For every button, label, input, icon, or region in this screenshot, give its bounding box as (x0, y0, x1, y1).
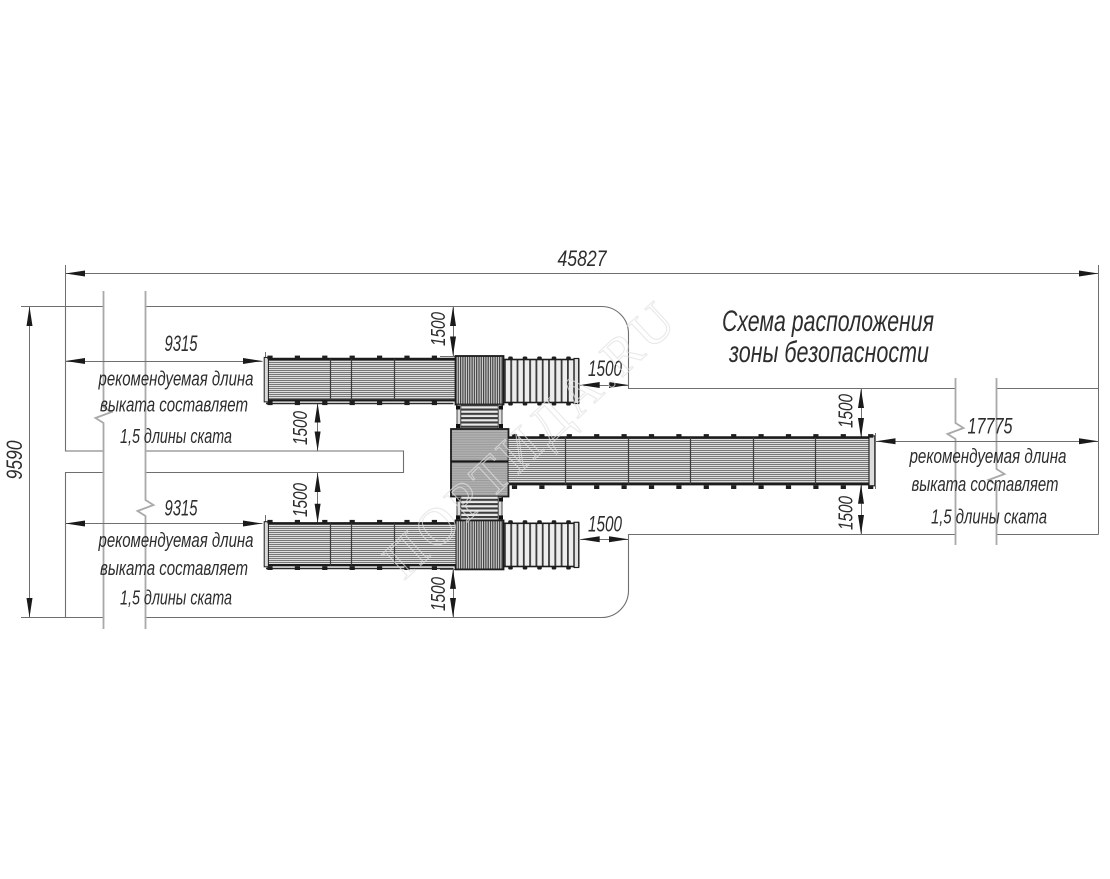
svg-text:1500: 1500 (836, 496, 858, 530)
svg-text:выката составляет: выката составляет (912, 474, 1059, 496)
svg-text:выката составляет: выката составляет (100, 395, 248, 417)
svg-text:1500: 1500 (836, 394, 858, 428)
svg-text:45827: 45827 (558, 246, 608, 271)
svg-text:рекомендуемая длина: рекомендуемая длина (909, 446, 1067, 468)
svg-text:зоны безопасности: зоны безопасности (728, 336, 929, 369)
svg-text:17775: 17775 (968, 414, 1014, 439)
svg-text:Схема расположения: Схема расположения (722, 305, 934, 338)
svg-text:9315: 9315 (165, 496, 199, 521)
svg-text:рекомендуемая длина: рекомендуемая длина (98, 530, 254, 552)
svg-text:1500: 1500 (290, 483, 312, 517)
svg-text:выката составляет: выката составляет (100, 558, 248, 580)
svg-text:1,5 длины ската: 1,5 длины ската (120, 426, 232, 448)
svg-text:1500: 1500 (428, 312, 450, 346)
svg-text:9590: 9590 (2, 440, 27, 480)
svg-text:1500: 1500 (428, 577, 450, 611)
svg-text:1500: 1500 (588, 512, 623, 537)
svg-text:1500: 1500 (290, 411, 312, 445)
svg-text:рекомендуемая длина: рекомендуемая длина (98, 369, 254, 391)
svg-text:9315: 9315 (165, 331, 199, 356)
svg-text:1,5 длины ската: 1,5 длины ската (120, 588, 232, 610)
svg-text:1,5 длины ската: 1,5 длины ската (931, 507, 1047, 529)
